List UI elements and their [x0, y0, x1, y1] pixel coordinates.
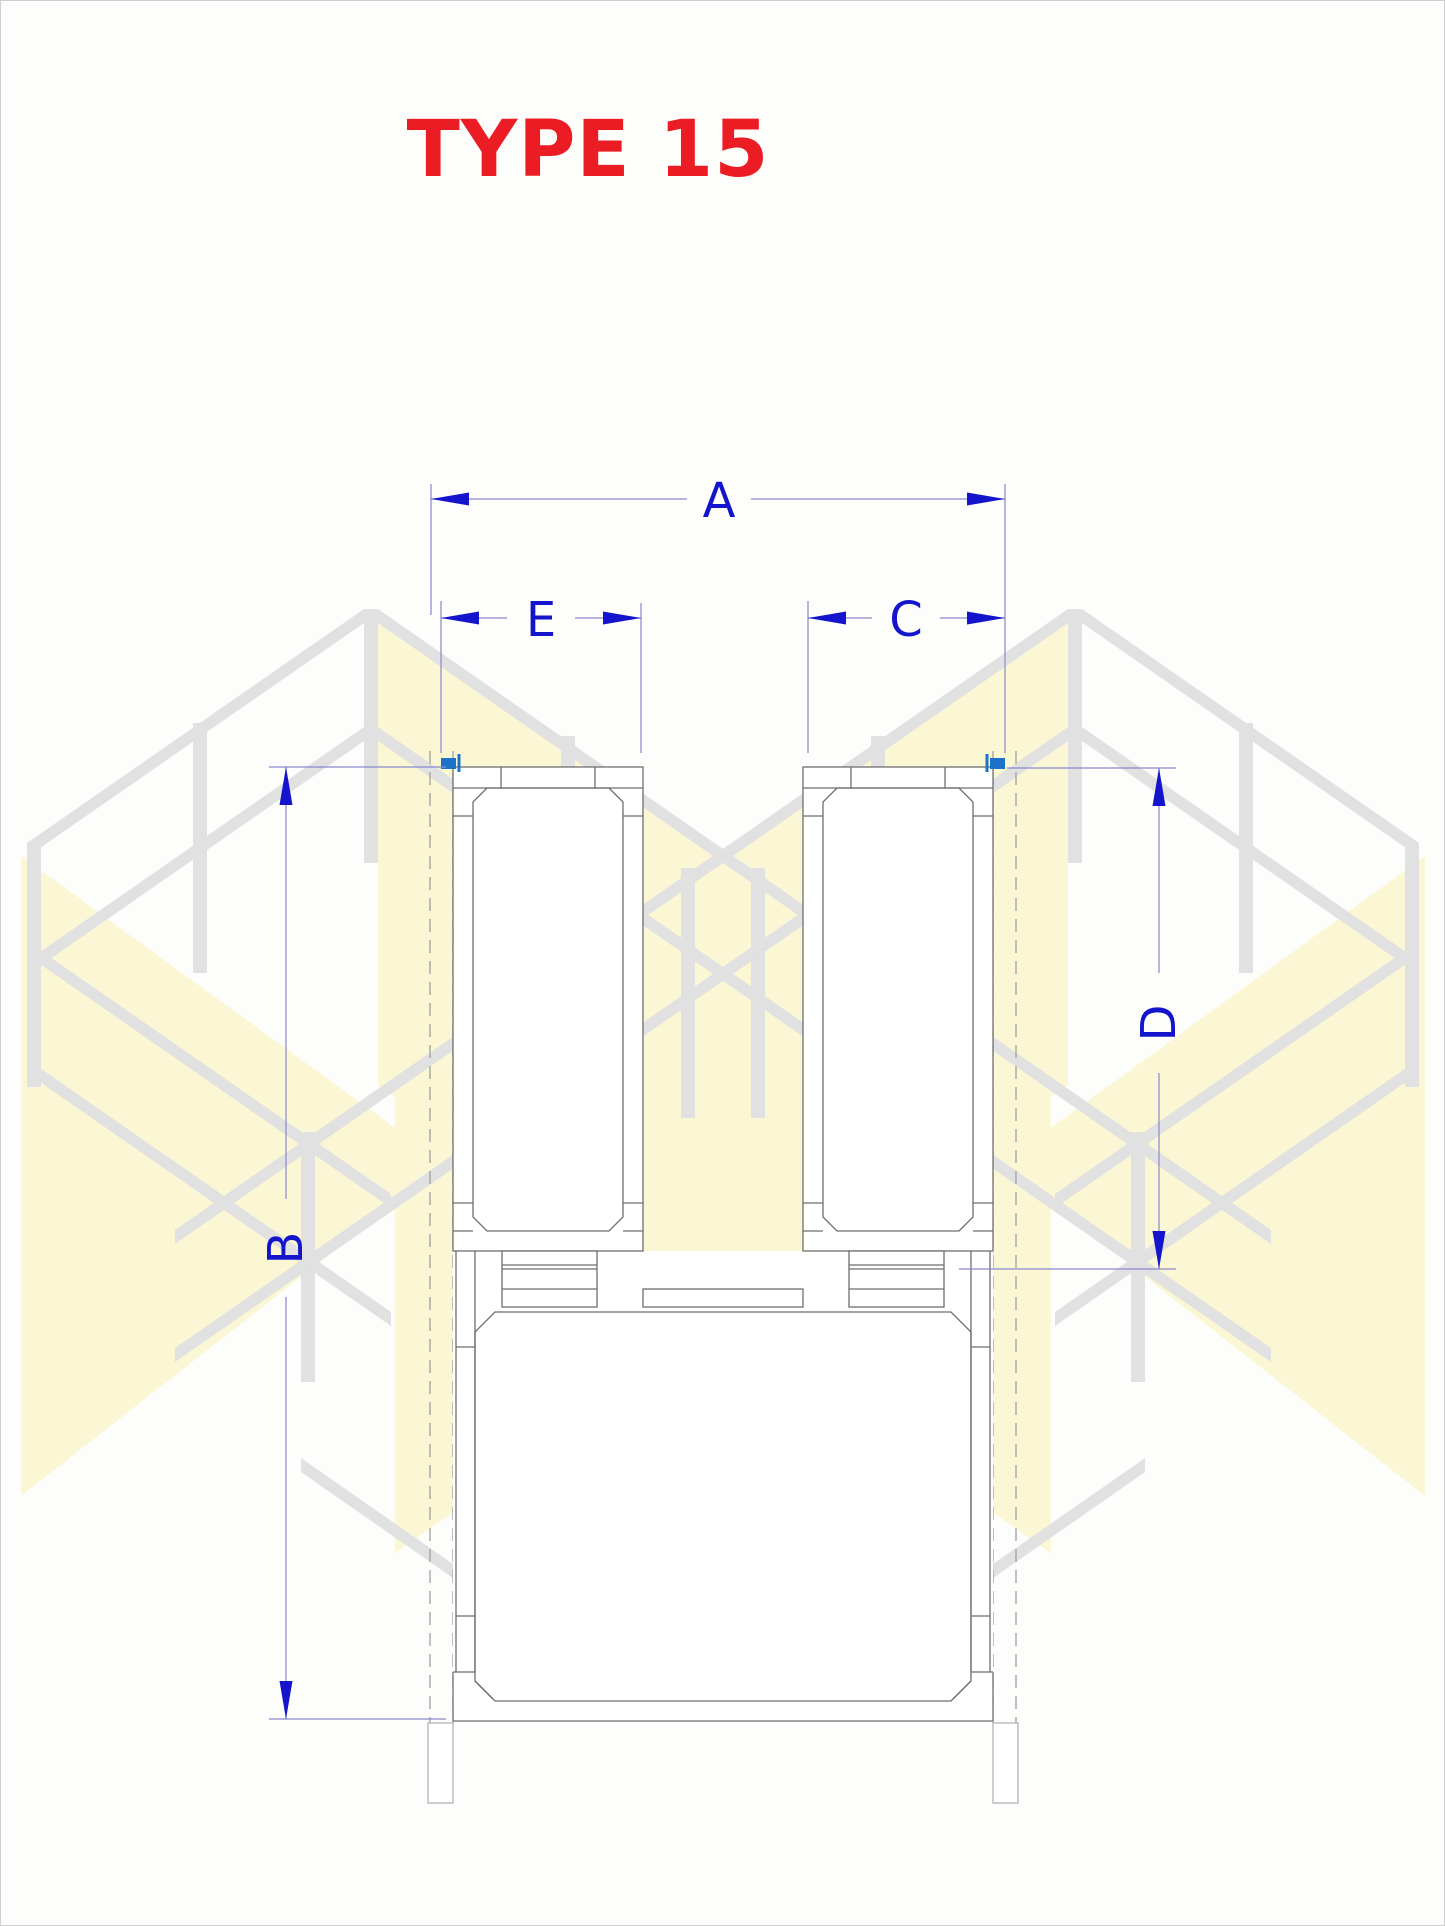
leaf-outline — [803, 767, 993, 1251]
arrow-left-icon — [808, 612, 846, 625]
iso-post — [681, 868, 695, 1118]
arrow-down-icon — [280, 1681, 293, 1719]
arrow-right-icon — [603, 612, 641, 625]
iso-post — [751, 868, 765, 1118]
lower-panel-body — [453, 1251, 993, 1721]
center-connector-bar — [643, 1289, 803, 1307]
iso-post — [27, 843, 41, 1087]
right-post-foot — [993, 1723, 1018, 1803]
iso-post — [1068, 609, 1082, 863]
arrow-left-icon — [431, 493, 469, 506]
arrow-right-icon — [967, 493, 1005, 506]
arrow-right-icon — [967, 612, 1005, 625]
dim-label-A: A — [687, 471, 751, 531]
dim-label-C: C — [874, 590, 938, 650]
left-gate-leaf — [453, 767, 643, 1251]
leaf-outline — [453, 767, 643, 1251]
drawing-sheet: TYPE 15 A E C B D — [0, 0, 1445, 1926]
dim-label-B: B — [256, 1216, 316, 1280]
right-bracket — [849, 1251, 944, 1307]
left-post-foot — [428, 1723, 453, 1803]
dim-label-E: E — [509, 590, 573, 650]
dim-label-D: D — [1129, 991, 1189, 1055]
arrow-left-icon — [441, 612, 479, 625]
iso-post — [1239, 723, 1253, 973]
iso-post — [1405, 843, 1419, 1087]
technical-drawing-canvas — [1, 1, 1445, 1926]
right-gate-leaf — [803, 767, 993, 1251]
iso-post — [364, 609, 378, 863]
post-feet — [428, 1723, 1018, 1803]
left-bracket — [502, 1251, 597, 1307]
page-title: TYPE 15 — [398, 105, 778, 195]
iso-post — [193, 723, 207, 973]
